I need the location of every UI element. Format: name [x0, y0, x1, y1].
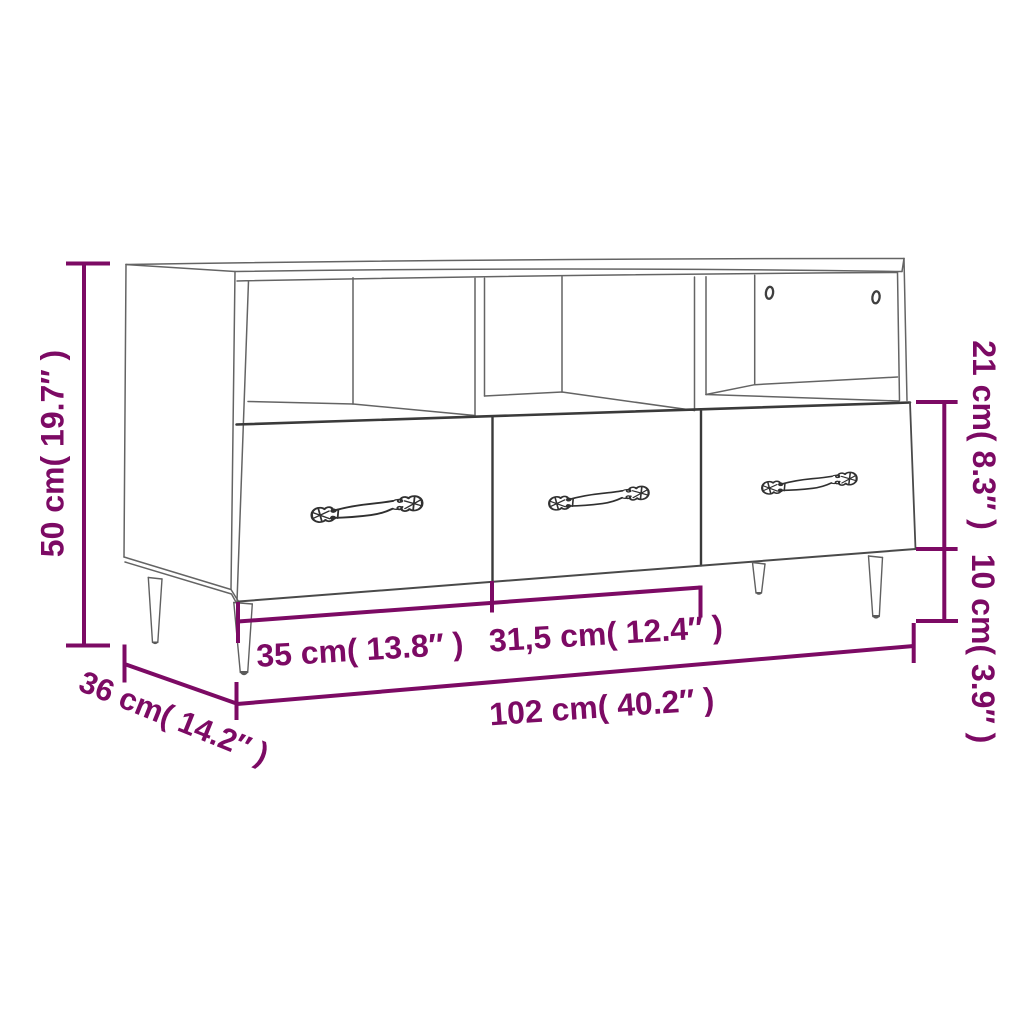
svg-text:21 cm( 8.3″ ): 21 cm( 8.3″ )	[966, 340, 1002, 530]
svg-text:50 cm( 19.7″ ): 50 cm( 19.7″ )	[35, 350, 71, 557]
svg-text:10 cm( 3.9″ ): 10 cm( 3.9″ )	[965, 554, 1001, 744]
